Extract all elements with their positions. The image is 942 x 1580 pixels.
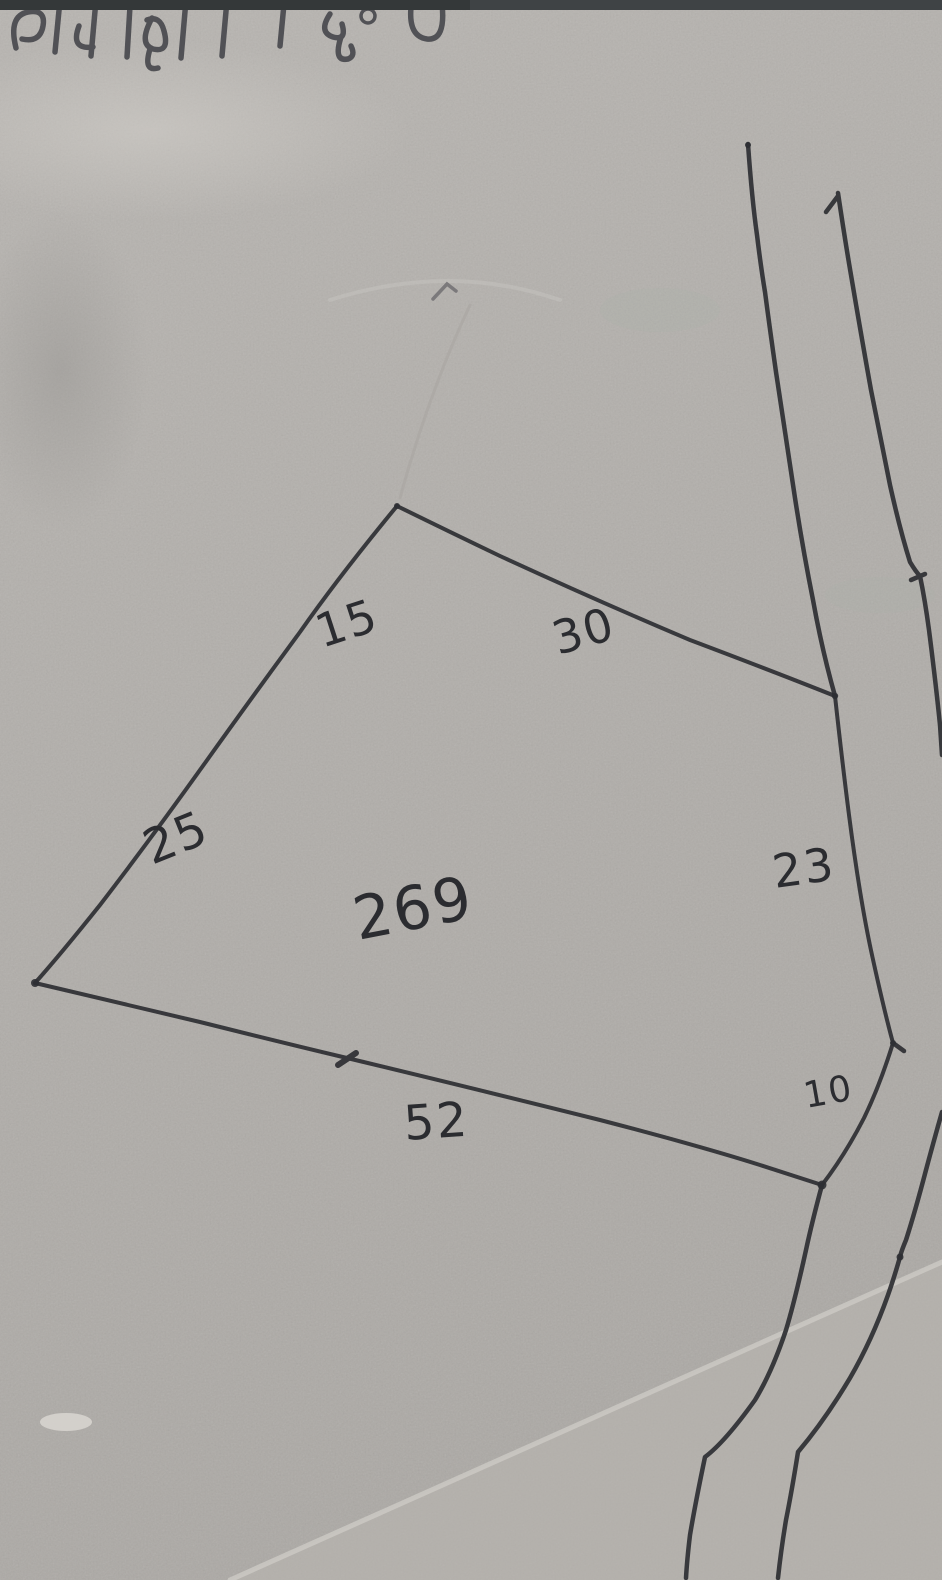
road-dot-node <box>897 1254 904 1261</box>
paper-highlight-spot <box>40 1413 92 1431</box>
paper-tint-spot <box>825 577 935 613</box>
side-label-10: 10 <box>800 1068 856 1117</box>
paper-tint-spot <box>600 288 720 332</box>
side-label-23: 23 <box>769 837 838 899</box>
southeast-node <box>818 1181 827 1190</box>
apex-node <box>394 503 400 509</box>
east-node <box>890 1040 896 1046</box>
top-dark-strip <box>0 0 942 10</box>
northeast-node <box>832 693 838 699</box>
photographed-plot-sketch: शामला हि०ण <box>0 0 942 1580</box>
west-node <box>31 979 39 987</box>
plot-sketch-drawing: शामला हि०ण <box>0 0 942 1580</box>
road-start-node <box>745 142 751 148</box>
paper-background <box>0 0 942 1580</box>
side-label-52: 52 <box>402 1092 471 1152</box>
